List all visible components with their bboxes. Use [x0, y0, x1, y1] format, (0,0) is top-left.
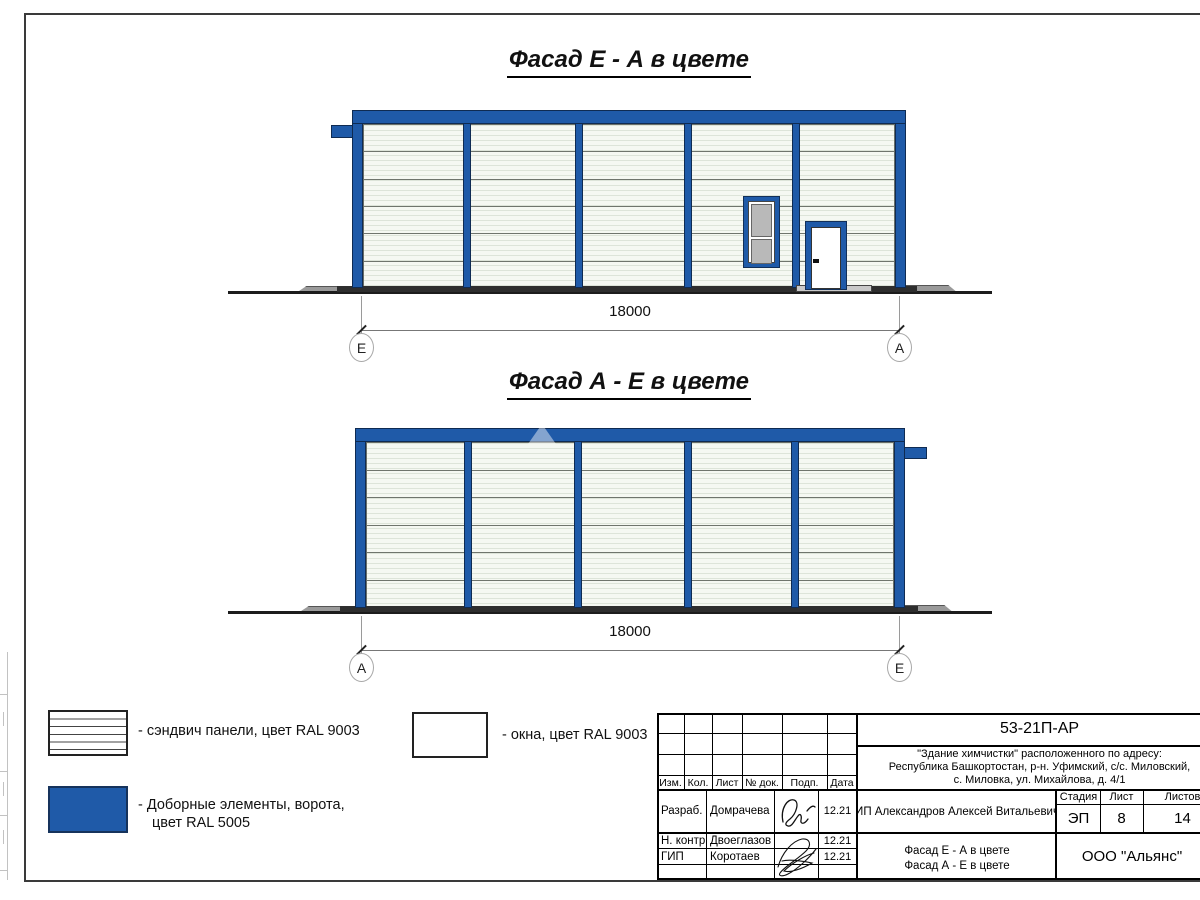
- facade1-window: [743, 196, 780, 268]
- panel-joint: [367, 470, 893, 471]
- facade2-gutter-outlet: [903, 447, 927, 459]
- panel-joint: [367, 580, 893, 581]
- tb-name-dvoeglazov: Двоеглазов: [706, 833, 774, 848]
- facade2-title: Фасад А - Е в цвете: [352, 368, 906, 400]
- facade1-dimension: 18000: [361, 303, 899, 320]
- dimension-line: [361, 330, 899, 331]
- facade1-mullion: [684, 123, 692, 288]
- facade2-mullion: [684, 441, 692, 608]
- legend-label-sandwich: - сэндвич панели, цвет RAL 9003: [138, 723, 360, 739]
- tb-line: [657, 864, 857, 865]
- door-leaf: [811, 227, 841, 289]
- dimension-line: [361, 650, 899, 651]
- tb-role-razrab: Разраб.: [657, 790, 706, 832]
- tb-date-3: 12.21: [818, 849, 857, 864]
- axis-bubble-right: Е: [887, 653, 912, 682]
- panel-joint: [364, 206, 894, 207]
- tb-col-izm: Изм.: [657, 775, 684, 790]
- tb-line: [657, 754, 857, 755]
- legend-swatch-sandwich: [48, 710, 128, 756]
- panel-joint: [364, 151, 894, 152]
- margin-tick: [0, 771, 8, 772]
- door-handle: [813, 259, 819, 263]
- legend-label-window: - окна, цвет RAL 9003: [502, 727, 647, 743]
- tb-col-doc: № док.: [742, 775, 782, 790]
- facade2-corner-column-left: [355, 441, 366, 608]
- facade1-title: Фасад Е - А в цвете: [352, 46, 906, 78]
- tb-col-list: Лист: [712, 775, 742, 790]
- axis-bubble-right: А: [887, 333, 912, 362]
- facade2-plinth: [340, 606, 918, 612]
- tb-project-line2: Республика Башкортостан, р-н. Уфимский, …: [857, 760, 1200, 773]
- facade2-dimension: 18000: [361, 623, 899, 640]
- facade2-roof-band: [355, 428, 905, 442]
- tb-company: ООО "Альянс": [1057, 833, 1200, 880]
- drawing-sheet: Фасад Е - А в цвете 18000 Е А: [0, 0, 1200, 900]
- tb-stage-label: Стадия: [1057, 790, 1100, 804]
- window-frame: [748, 201, 775, 263]
- margin-tick: [0, 694, 8, 695]
- tb-doc-number: 53-21П-АР: [857, 713, 1200, 745]
- margin-mark: [3, 830, 4, 844]
- panel-joint: [367, 552, 893, 553]
- legend-swatch-window: [412, 712, 488, 758]
- tb-sheets-label: Листов: [1143, 790, 1200, 804]
- axis-bubble-left: А: [349, 653, 374, 682]
- window-glass-lower: [751, 239, 772, 264]
- tb-sheet-title-1: Фасад Е - А в цвете: [858, 843, 1056, 858]
- facade2-corner-column-right: [894, 441, 905, 608]
- facade1-mullion: [575, 123, 583, 288]
- tb-sheet-value: 8: [1100, 804, 1143, 832]
- legend-label-extras-1: - Доборные элементы, ворота,: [138, 797, 345, 813]
- tb-name-korotaev: Коротаев: [706, 849, 774, 864]
- signature-domracheva: [777, 794, 817, 830]
- tb-role-gip: ГИП: [657, 849, 706, 864]
- facade1-corner-column-left: [352, 123, 363, 288]
- tb-date-1: 12.21: [818, 790, 857, 832]
- tb-client: ИП Александров Алексей Витальевич: [858, 791, 1056, 832]
- legend-swatch-extras: [48, 786, 128, 833]
- margin-mark: [3, 782, 4, 796]
- tb-col-kol: Кол.: [684, 775, 712, 790]
- facade2-mullion: [791, 441, 799, 608]
- tb-col-podp: Подп.: [782, 775, 827, 790]
- facade1-mullion: [792, 123, 800, 288]
- axis-bubble-left: Е: [349, 333, 374, 362]
- tb-sheets-value: 14: [1143, 804, 1200, 832]
- watermark-logo: [528, 424, 556, 444]
- panel-joint: [367, 497, 893, 498]
- tb-project-line1: "Здание химчистки" расположенного по адр…: [857, 747, 1200, 760]
- facade1-mullion: [463, 123, 471, 288]
- window-glass-upper: [751, 204, 772, 237]
- panel-joint: [367, 525, 893, 526]
- legend-label-extras-2: цвет RAL 5005: [152, 815, 250, 831]
- facade2-mullion: [574, 441, 582, 608]
- tb-col-data: Дата: [827, 775, 857, 790]
- tb-project-line3: с. Миловка, ул. Михайлова, д. 4/1: [857, 773, 1200, 786]
- margin-tick: [0, 870, 8, 871]
- facade2-mullion: [464, 441, 472, 608]
- signature-scribble: [772, 833, 820, 879]
- tb-line: [657, 733, 857, 734]
- tb-role-nkontr: Н. контр.: [657, 833, 706, 848]
- panel-joint: [364, 179, 894, 180]
- tb-stage-value: ЭП: [1057, 804, 1100, 832]
- margin-tick: [0, 815, 8, 816]
- tb-date-2: 12.21: [818, 833, 857, 848]
- facade1-corner-column-right: [895, 123, 906, 288]
- tb-sheet-title-2: Фасад А - Е в цвете: [858, 858, 1056, 873]
- facade1-door: [805, 221, 847, 290]
- margin-mark: [3, 712, 4, 726]
- facade1-gutter-outlet: [331, 125, 354, 138]
- margin-column-line: [7, 652, 8, 880]
- tb-sheet-label: Лист: [1100, 790, 1143, 804]
- tb-name-domracheva: Домрачева: [706, 790, 774, 832]
- facade1-roof-band: [352, 110, 906, 124]
